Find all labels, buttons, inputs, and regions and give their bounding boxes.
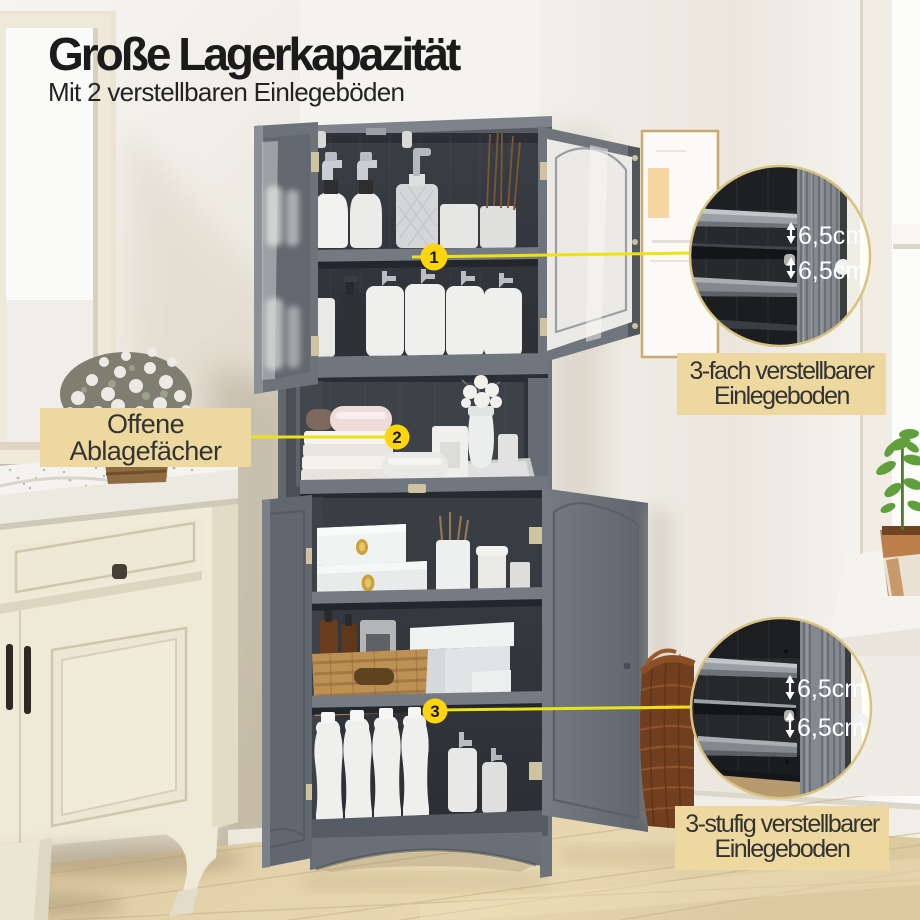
svg-text:6,5cm: 6,5cm <box>798 257 866 285</box>
svg-text:2: 2 <box>392 428 401 447</box>
svg-text:1: 1 <box>429 248 438 267</box>
svg-text:6,5cm: 6,5cm <box>797 714 865 742</box>
svg-text:3: 3 <box>430 702 439 721</box>
svg-text:6,5cm: 6,5cm <box>797 675 865 703</box>
svg-text:6,5cm: 6,5cm <box>798 222 866 250</box>
